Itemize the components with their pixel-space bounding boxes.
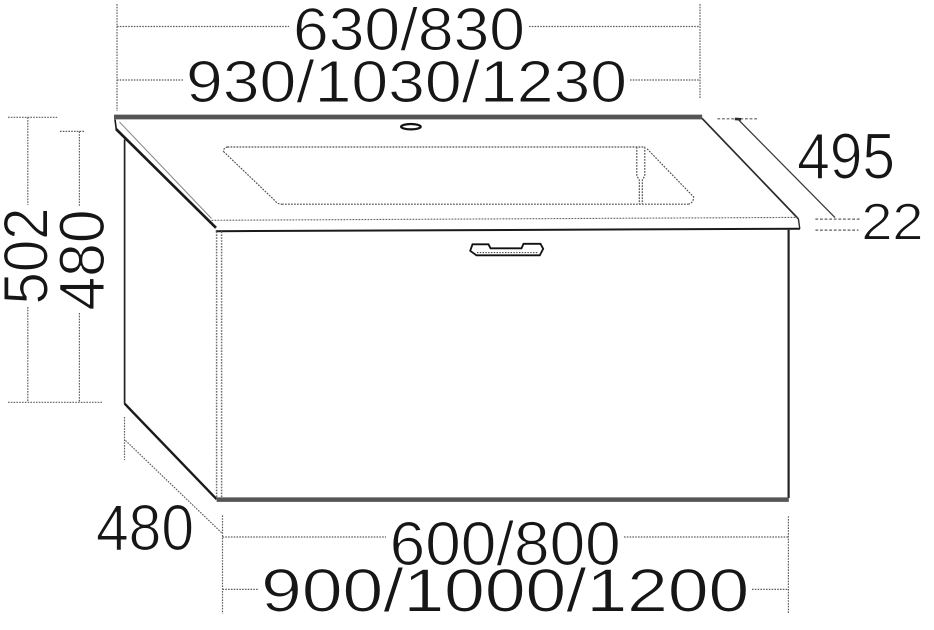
svg-text:900/1000/1200: 900/1000/1200 (261, 557, 749, 625)
svg-text:930/1030/1230: 930/1030/1230 (186, 49, 627, 115)
svg-text:22: 22 (861, 194, 923, 252)
svg-text:480: 480 (96, 491, 194, 564)
svg-text:480: 480 (46, 210, 118, 311)
svg-text:495: 495 (797, 119, 895, 192)
